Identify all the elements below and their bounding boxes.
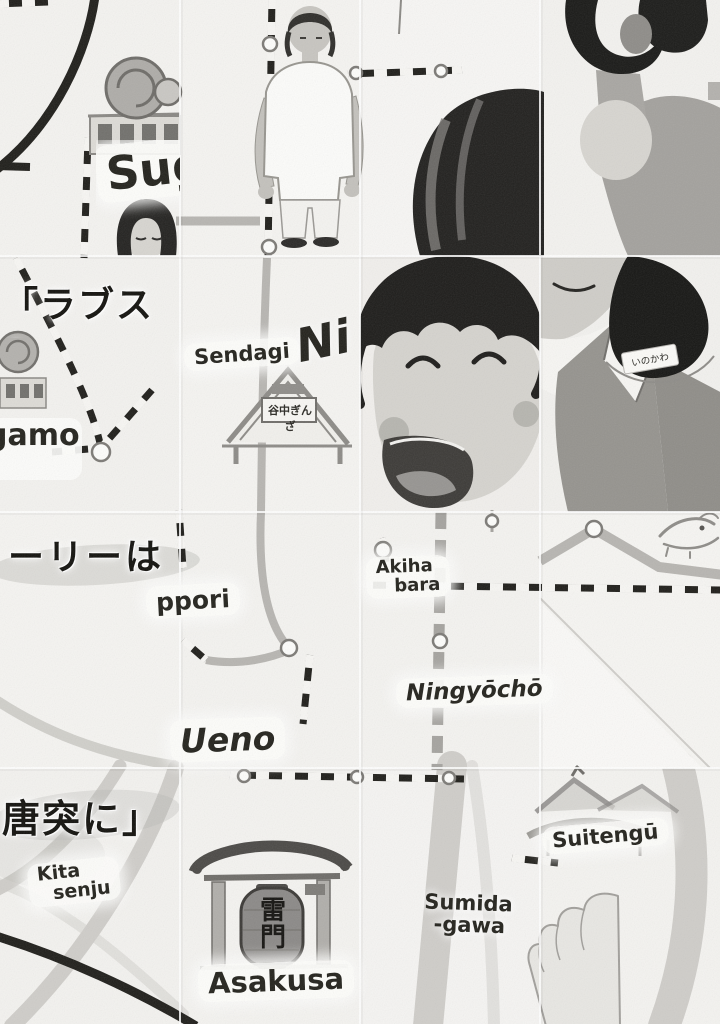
label-sumida-gawa: Sumida -gawa [423, 890, 513, 937]
kaminarimon-lantern-text: 雷門 [258, 898, 288, 951]
illustrated-map-collage: Sug 「ラブスト Sendagi Ni gamo ーリーは ppori Aki… [0, 0, 720, 1024]
label-nippori-partial-top: Ni [296, 314, 360, 402]
label-akihabara: Akiha bara [365, 555, 450, 600]
label-ningyocho: Ningyōchō [396, 673, 554, 708]
vest-woman-illustration [540, 256, 720, 512]
station-label-text: Ni [296, 314, 355, 373]
label-ueno: Ueno [169, 716, 286, 763]
station-label-line2: bara [394, 576, 441, 596]
label-asakusa: Asakusa [197, 959, 354, 1002]
label-nippori-partial: ppori [145, 582, 240, 620]
station-label-text: gamo [0, 418, 80, 453]
station-label-line2: senju [52, 878, 112, 904]
station-label-text: Sug [96, 140, 180, 204]
label-sugamo-partial-top: Sug [96, 140, 180, 240]
yanaka-ginza-sign-text: 谷中ぎんざ [264, 402, 316, 434]
phrase-line-1: 「ラブスト [2, 276, 178, 338]
label-sugamo-partial: gamo [0, 418, 82, 480]
phrase-line-2: ーリーは [8, 528, 164, 580]
phrase-line-3: 唐突に」 [2, 788, 162, 843]
phrase-text: 「ラブスト [2, 276, 178, 338]
river-label-line2: -gawa [433, 913, 512, 938]
